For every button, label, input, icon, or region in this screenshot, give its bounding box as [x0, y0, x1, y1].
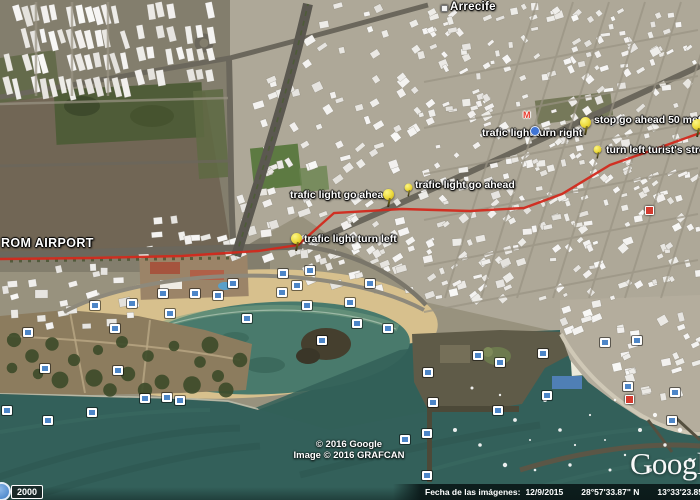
route-pushpin-icon[interactable]: [580, 117, 591, 128]
google-logo: Google: [630, 446, 700, 482]
route-marker-label-go-ahead-2[interactable]: trafic light go ahead: [415, 179, 515, 191]
longitude-value: 13°33'23.85" O: [657, 487, 700, 497]
photo-marker-icon[interactable]: [162, 393, 172, 402]
route-marker-label-stop-50m[interactable]: stop go ahead 50 meters: [594, 114, 700, 126]
route-origin-label-airport: ROM AIRPORT: [1, 236, 94, 250]
photo-marker-icon[interactable]: [277, 288, 287, 297]
photo-marker-icon[interactable]: [305, 266, 315, 275]
photo-marker-icon[interactable]: [473, 351, 483, 360]
city-marker-icon[interactable]: [441, 5, 448, 12]
photo-marker-icon[interactable]: [423, 368, 433, 377]
route-pushpin-icon[interactable]: [383, 189, 394, 200]
photo-marker-icon[interactable]: [165, 309, 175, 318]
photo-marker-icon[interactable]: [242, 314, 252, 323]
poi-m-icon[interactable]: M: [523, 110, 531, 120]
photo-marker-icon[interactable]: [352, 319, 362, 328]
route-marker-label-go-ahead-1[interactable]: trafic light go ahead: [290, 189, 390, 201]
photo-marker-icon[interactable]: [428, 398, 438, 407]
attribution-line1: © 2016 Google: [273, 440, 425, 451]
latitude-value: 28°57'33.87" N: [581, 487, 639, 497]
route-pushpin-icon[interactable]: [405, 184, 413, 192]
photo-marker-icon[interactable]: [317, 336, 327, 345]
attribution-line2: Image © 2016 GRAFCAN: [273, 451, 425, 462]
photo-marker-icon[interactable]: [302, 301, 312, 310]
photo-marker-icon[interactable]: [40, 364, 50, 373]
map-attribution: © 2016 Google Image © 2016 GRAFCAN: [273, 440, 425, 461]
photo-marker-icon[interactable]: [292, 281, 302, 290]
poi-red-icon[interactable]: [645, 206, 654, 215]
scale-indicator[interactable]: 2000: [11, 485, 43, 499]
photo-marker-icon[interactable]: [278, 269, 288, 278]
photo-marker-icon[interactable]: [495, 358, 505, 367]
photo-marker-icon[interactable]: [190, 289, 200, 298]
photo-marker-icon[interactable]: [493, 406, 503, 415]
status-bar: Fecha de las imágenes: 12/9/2015 28°57'3…: [393, 484, 700, 500]
photo-marker-icon[interactable]: [23, 328, 33, 337]
route-marker-label-turn-left[interactable]: trafic light turn left: [304, 233, 397, 245]
city-label-arrecife[interactable]: Arrecife: [450, 1, 496, 13]
photo-marker-icon[interactable]: [345, 298, 355, 307]
imagery-date-value: 12/9/2015: [525, 487, 563, 497]
photo-marker-icon[interactable]: [110, 324, 120, 333]
route-pushpin-icon[interactable]: [594, 146, 602, 154]
photo-marker-icon[interactable]: [127, 299, 137, 308]
photo-marker-icon[interactable]: [175, 396, 185, 405]
photo-marker-icon[interactable]: [43, 416, 53, 425]
poi-red-icon[interactable]: [625, 395, 634, 404]
photo-marker-icon[interactable]: [140, 394, 150, 403]
photo-marker-icon[interactable]: [538, 349, 548, 358]
photo-marker-icon[interactable]: [422, 429, 432, 438]
satellite-imagery[interactable]: [0, 0, 700, 500]
photo-marker-icon[interactable]: [422, 471, 432, 480]
photo-marker-icon[interactable]: [623, 382, 633, 391]
photo-marker-icon[interactable]: [87, 408, 97, 417]
photo-marker-icon[interactable]: [670, 388, 680, 397]
photo-marker-icon[interactable]: [113, 366, 123, 375]
google-earth-map-view[interactable]: Arrecife ROM AIRPORT trafic light go ahe…: [0, 0, 700, 500]
poi-blue-dot-icon[interactable]: [530, 126, 540, 136]
photo-marker-icon[interactable]: [213, 291, 223, 300]
photo-marker-icon[interactable]: [383, 324, 393, 333]
photo-marker-icon[interactable]: [90, 301, 100, 310]
photo-marker-icon[interactable]: [542, 391, 552, 400]
imagery-date-label: Fecha de las imágenes:: [425, 487, 520, 497]
photo-marker-icon[interactable]: [2, 406, 12, 415]
photo-marker-icon[interactable]: [632, 336, 642, 345]
photo-marker-icon[interactable]: [667, 416, 677, 425]
photo-marker-icon[interactable]: [158, 289, 168, 298]
photo-marker-icon[interactable]: [600, 338, 610, 347]
photo-marker-icon[interactable]: [365, 279, 375, 288]
route-marker-label-turist-street[interactable]: turn left turist's street: [606, 144, 700, 156]
photo-marker-icon[interactable]: [228, 279, 238, 288]
route-pushpin-icon[interactable]: [692, 119, 700, 130]
route-pushpin-icon[interactable]: [291, 233, 302, 244]
